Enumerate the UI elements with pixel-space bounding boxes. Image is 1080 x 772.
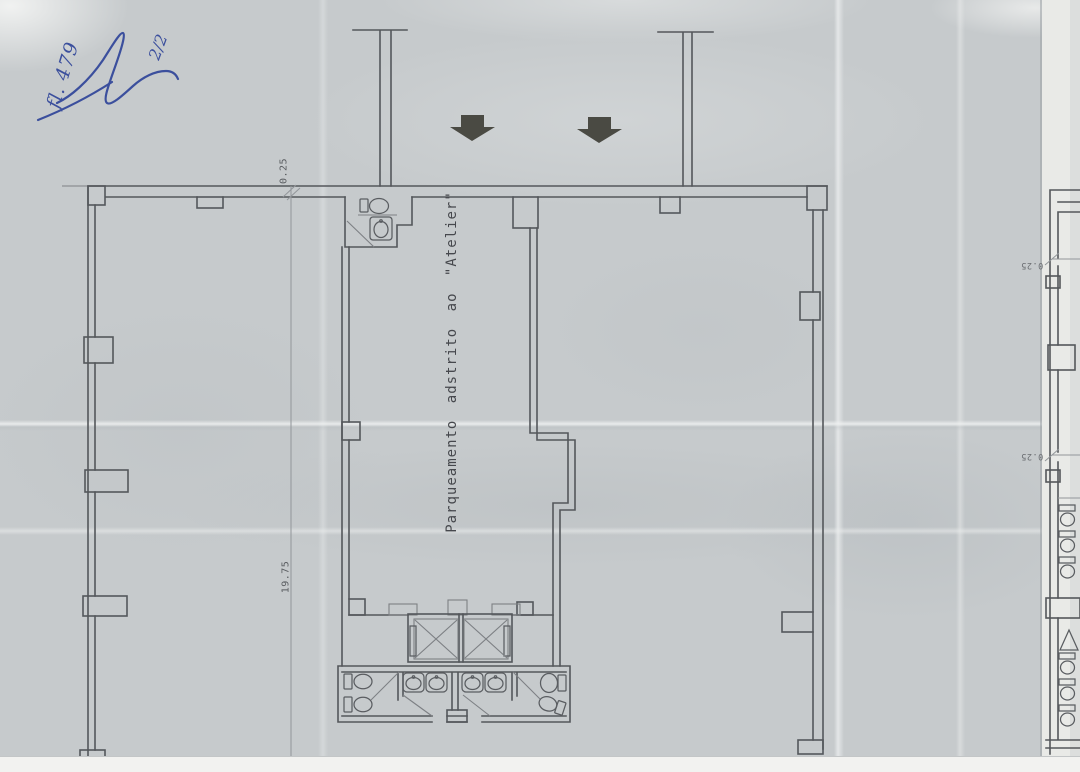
toilet-icon [1059,653,1075,674]
toilet-icon [360,199,389,214]
toilet-icon [1059,531,1075,552]
toilet-icon [1059,679,1075,700]
scanned-floorplan-page: Parqueamento adstrito ao "Atelier" 0.25 … [0,0,1080,772]
upper-wc-room [345,197,412,247]
entrance-ramp-walls [353,30,713,186]
elevator-shaft-icon [464,619,510,659]
elevator-core [349,600,553,662]
sink-icon [485,673,506,692]
elevator-shaft-icon [410,619,458,659]
toilet-icon [537,694,566,715]
adjacent-plan-dimension-upper: 0.25 [1021,260,1043,270]
sink-icon [426,673,447,692]
toilet-icon [541,674,567,693]
floorplan-drawing [0,0,1080,772]
down-arrow-icon [450,115,495,141]
urinal-icon [1060,630,1078,650]
dimension-line [283,185,300,770]
toilet-icon [1059,505,1075,526]
toilet-icon [1059,705,1075,726]
door-swing-icon [371,672,399,700]
sink-icon [370,217,392,240]
sink-icon [403,673,424,692]
sink-icon [462,673,483,692]
adjacent-plan-fragment [1045,190,1080,754]
toilet-icon [1059,557,1075,578]
down-arrow-icon [577,117,622,143]
scan-edge-bottom [0,756,1080,772]
toilet-icon [344,697,372,712]
room-label: Parqueamento adstrito ao "Atelier" [444,191,460,533]
dimension-label-length: 19.75 [281,561,292,594]
door-swing-icon [403,695,432,716]
restroom-block [338,666,570,722]
dimension-label-wall-thickness: 0.25 [279,158,290,184]
toilet-icon [344,674,372,689]
adjacent-plan-dimension-lower: 0.25 [1021,451,1043,461]
